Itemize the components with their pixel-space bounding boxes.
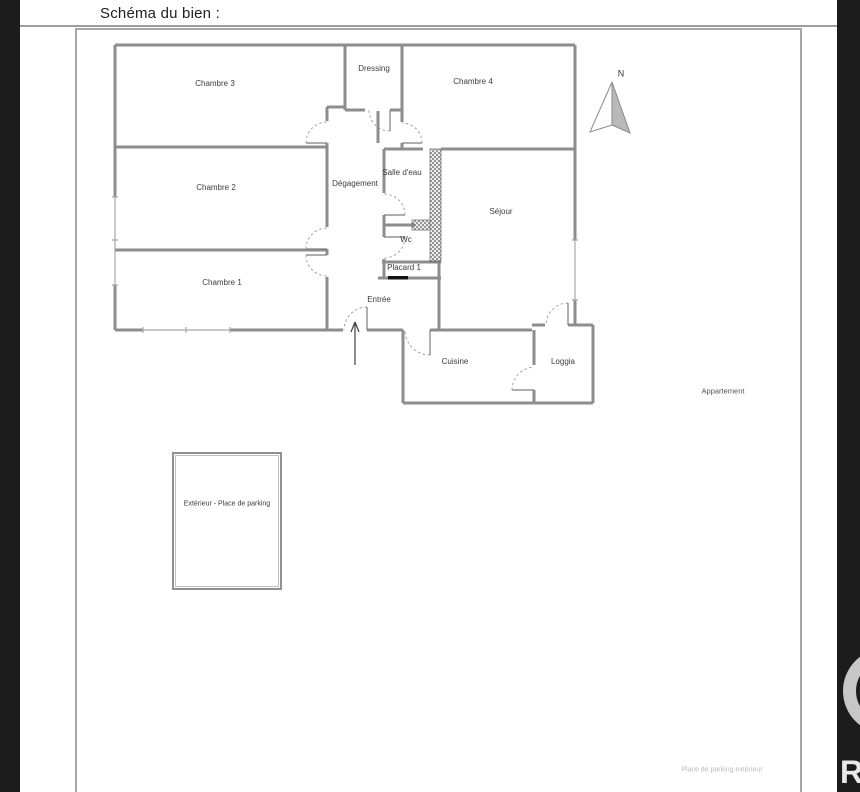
parking-space-inner-border [175,455,279,587]
room-label-wc: Wc [400,236,412,244]
room-label-dressing: Dressing [358,65,390,73]
room-label-chambre-2: Chambre 2 [196,184,236,192]
title-underline [20,25,837,27]
room-label-loggia: Loggia [551,358,575,366]
section-title: Schéma du bien : [100,5,220,22]
watermark-letter: R [840,756,860,788]
north-arrow-icon [590,82,630,133]
entrance-arrow-icon [351,322,359,365]
room-label-chambre-1: Chambre 1 [202,279,242,287]
room-label-cuisine: Cuisine [442,358,469,366]
listing-plan-photo: Schéma du bien : [0,0,860,792]
room-label-entree: Entrée [367,296,391,304]
room-label-placard-1: Placard 1 [387,264,421,272]
windows-layer [112,197,578,333]
parking-space-box: Extérieur - Place de parking [172,452,282,590]
parking-space-label: Extérieur - Place de parking [184,501,270,508]
room-label-degagement: Dégagement [332,180,378,188]
walls-layer [115,45,593,403]
room-label-sejour: Séjour [489,208,512,216]
exterior-caption: Place de parking extérieur [681,767,762,774]
placard-threshold [388,276,408,280]
apartment-area-label: Appartement [702,387,745,395]
room-label-salle-deau: Salle d'eau [382,169,421,177]
hatched-wall [412,149,441,262]
room-label-chambre-4: Chambre 4 [453,78,493,86]
photo-left-black-bar [0,0,20,792]
north-label: N [618,70,625,79]
room-label-chambre-3: Chambre 3 [195,80,235,88]
floor-plan [75,29,802,414]
